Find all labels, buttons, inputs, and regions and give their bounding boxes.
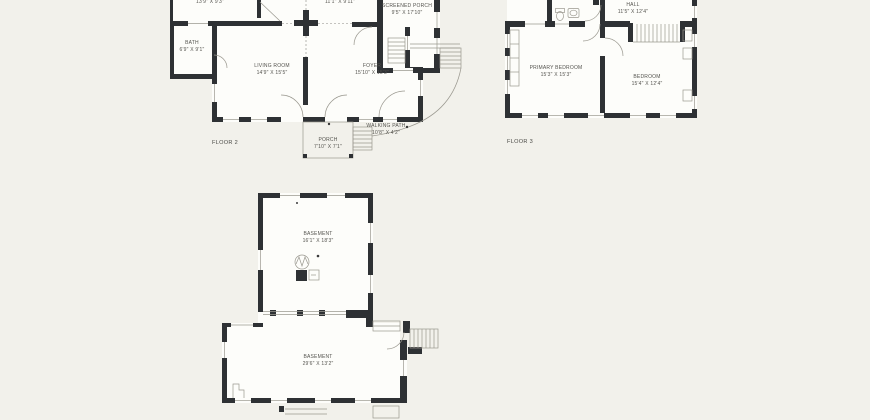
basement-exterior-details (279, 406, 399, 418)
porch-label: PORCH (318, 137, 337, 143)
basement-walkout-stairs-icon (410, 329, 438, 348)
bedroom-dims: 15'4" X 12'4" (632, 81, 663, 87)
foyer-dims: 15'10" X 15'3" (355, 70, 389, 76)
basement-upper-dims: 16'1" X 18'3" (303, 238, 334, 244)
living-room-label: LIVING ROOM (254, 63, 290, 69)
floorplan-page: 13'9" X 9'3" 11'1" X 9'11" SCREENED PORC… (0, 0, 870, 420)
floor2-drawing: 13'9" X 9'3" 11'1" X 9'11" SCREENED PORC… (163, 0, 468, 168)
floor3-plan: HALL 11'5" X 12'4" PRIMARY BEDROOM 15'3"… (500, 0, 715, 155)
floor2-topleft-dims: 13'9" X 9'3" (196, 0, 224, 5)
basement-room-fills (222, 193, 400, 403)
walking-path-label: WALKING PATH (366, 123, 405, 129)
basement-lower-dims: 29'6" X 13'2" (303, 361, 334, 367)
porch-dims: 7'10" X 7'1" (314, 144, 342, 150)
bath-label: BATH (185, 40, 199, 46)
foyer-label: FOYER (363, 63, 381, 69)
screened-porch-dims: 9'5" X 17'10" (392, 10, 423, 16)
bath-dims: 6'9" X 9'1" (180, 47, 205, 53)
hall-label: HALL (626, 2, 639, 8)
basement-lower-label: BASEMENT (303, 354, 332, 360)
screened-porch-label: SCREENED PORCH (382, 3, 432, 9)
primary-bedroom-dims: 15'3" X 15'3" (541, 72, 572, 78)
floor2-topmid-dims: 11'1" X 9'11" (325, 0, 355, 5)
hall-dims: 11'5" X 12'4" (618, 9, 649, 15)
bedroom-label: BEDROOM (633, 74, 660, 80)
floor2-title: FLOOR 2 (212, 140, 238, 146)
floor3-room-fills (507, 0, 692, 113)
basement-drawing: BASEMENT 16'1" X 18'3" BASEMENT 29'6" X … (215, 190, 465, 420)
furnace-icon (296, 270, 307, 281)
floor2-plan: 13'9" X 9'3" 11'1" X 9'11" SCREENED PORC… (163, 0, 468, 168)
basement-upper-label: BASEMENT (303, 231, 332, 237)
living-room-dims: 14'9" X 15'5" (257, 70, 288, 76)
basement-plan: BASEMENT 16'1" X 18'3" BASEMENT 29'6" X … (215, 190, 465, 420)
floor3-title: FLOOR 3 (507, 139, 533, 145)
floor3-drawing: HALL 11'5" X 12'4" PRIMARY BEDROOM 15'3"… (500, 0, 715, 155)
primary-bedroom-label: PRIMARY BEDROOM (530, 65, 583, 71)
floor2-exterior-steps-icon (353, 127, 372, 150)
walking-path-dims: 10'8" X 4'2" (372, 130, 400, 136)
